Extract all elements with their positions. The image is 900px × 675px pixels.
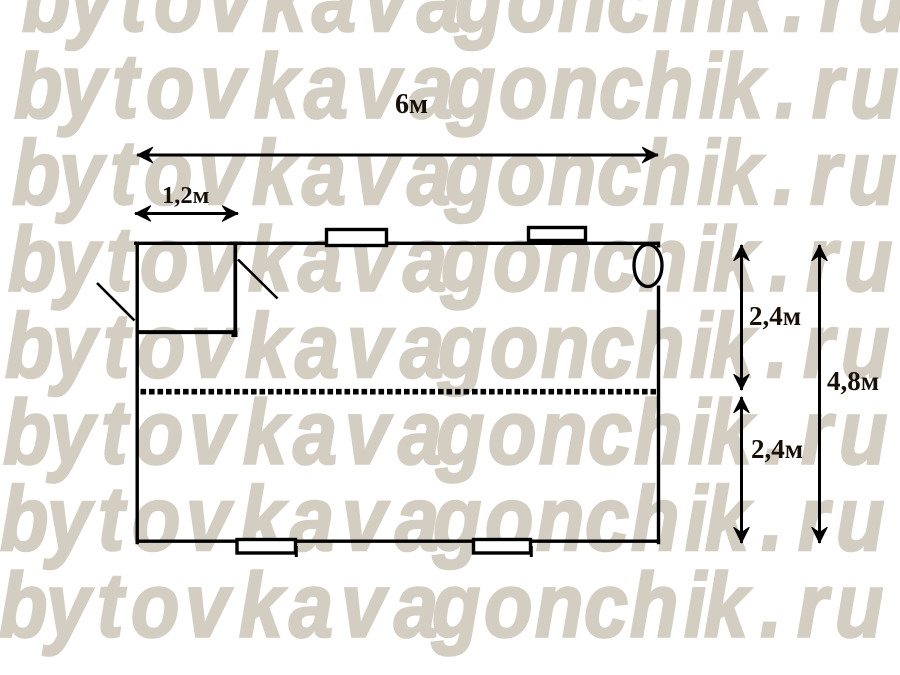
svg-text:2,4м: 2,4м: [751, 434, 803, 464]
svg-text:2,4м: 2,4м: [749, 301, 801, 331]
svg-text:4,8м: 4,8м: [827, 366, 879, 396]
svg-text:6м: 6м: [395, 89, 428, 120]
svg-text:1,2м: 1,2м: [162, 182, 209, 209]
